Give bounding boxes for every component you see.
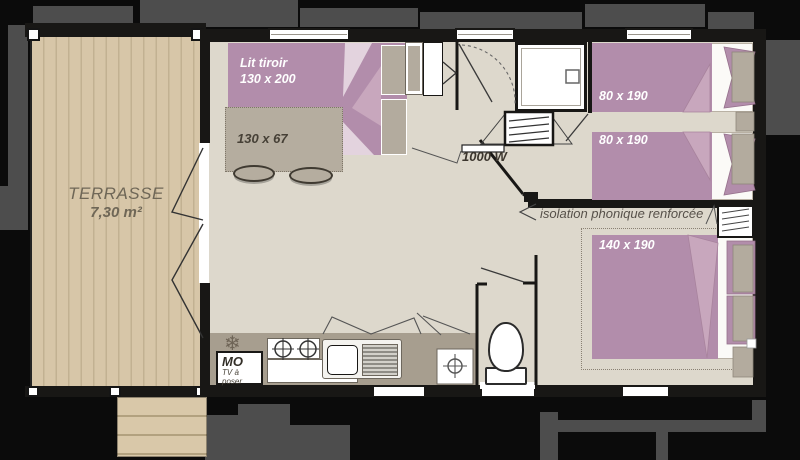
terrace-area-label: 7,30 m² [46,204,186,221]
master-bed-size-label: 140 x 190 [599,238,655,252]
twin-nightstand [736,112,754,131]
stove-burners [272,338,319,360]
table-size-label: 130 x 67 [237,131,288,146]
kitchen-cabinet-swing-lines [323,317,421,334]
insulation-note-label: isolation phonique renforcée [540,206,703,221]
twin-bed-1-size-label: 80 x 190 [599,89,648,103]
sliding-door-arrows [172,148,203,338]
terrace-label: TERRASSE [46,184,186,204]
shower-drain [566,70,579,83]
sofa-bed-size-label: 130 x 200 [240,72,296,86]
radiator-power-label: 1000 W [462,149,507,164]
plan-lines-layer [0,0,800,460]
twin-bed-1-details [683,47,755,112]
mobile-home-floor-plan: ❄ MO TV à poser [0,0,800,460]
twin-bedroom-door [566,114,588,141]
master-radiator [706,206,753,237]
master-bed-details [688,235,756,377]
washbasin-faucet-icon [437,349,473,384]
wardrobe-rail-icon [443,62,456,84]
wc-door [481,268,524,282]
washbasin-counter-lines [417,313,470,335]
sofa-bed-name-label: Lit tiroir [240,56,287,70]
twin-bed-2-details [683,132,755,195]
sofa-fabric-folds [343,43,381,155]
bathroom-door [459,44,515,105]
twin-bed-2-size-label: 80 x 190 [599,133,648,147]
master-door-arrow [520,204,536,220]
